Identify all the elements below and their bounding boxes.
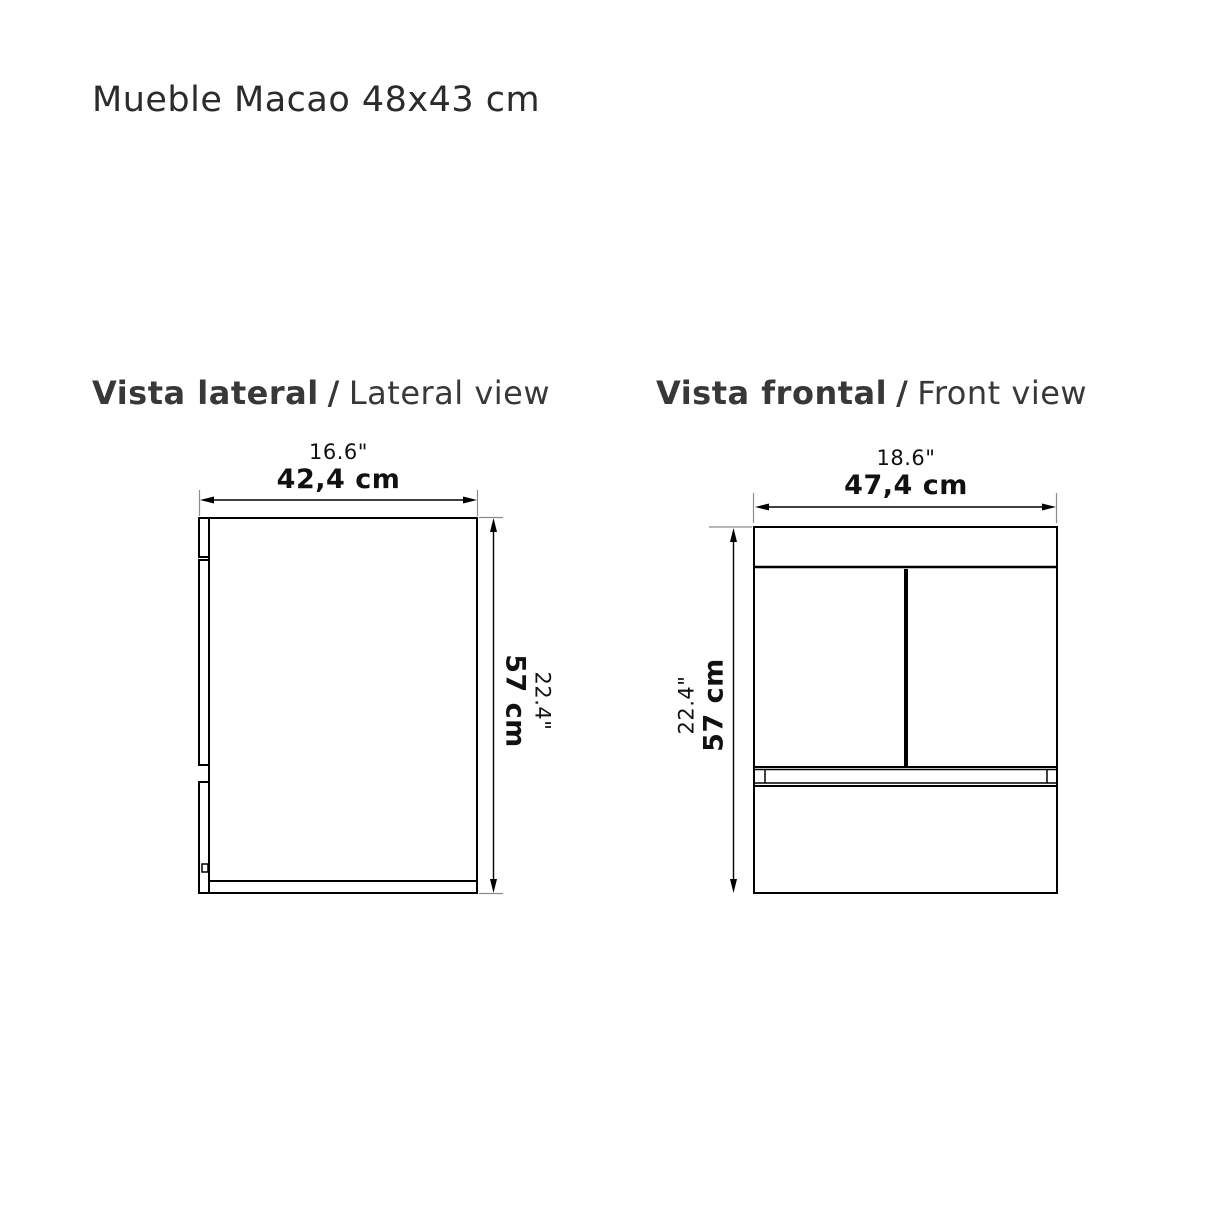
arrowhead-left [200,497,214,504]
front-width-dimension-labels: 18.6" 47,4 cm [755,446,1057,501]
arrowhead-down [490,879,497,893]
lateral-cabinet-body [209,518,477,893]
arrowhead-down [730,879,737,893]
lateral-height-dimension-labels: 22.4" 57 cm [500,654,555,748]
front-bottom-panel [754,786,1057,893]
lateral-width-cm: 42,4 cm [200,464,477,495]
front-height-inches: 22.4" [675,658,699,752]
lateral-door-profile [199,560,209,765]
front-width-cm: 47,4 cm [755,470,1057,501]
front-height-dimension-labels: 22.4" 57 cm [675,658,730,752]
front-width-inches: 18.6" [755,446,1057,470]
front-height-cm: 57 cm [699,658,730,752]
lateral-height-cm: 57 cm [500,654,531,748]
lateral-width-inches: 16.6" [200,440,477,464]
technical-drawing-page: Mueble Macao 48x43 cm Vista lateral/Late… [0,0,1214,1214]
drawing-linework [0,0,1214,1214]
lateral-top-edge-profile [199,518,209,557]
lateral-height-inches: 22.4" [531,654,555,748]
arrowhead-right [1042,504,1056,511]
lateral-view-drawing [199,490,503,894]
arrowhead-right [463,497,477,504]
frontal-view-drawing [709,493,1057,893]
arrowhead-left [755,504,769,511]
lateral-leveler-detail [202,864,208,872]
arrowhead-up [490,518,497,532]
lateral-drawer-profile [199,782,209,893]
lateral-width-dimension-labels: 16.6" 42,4 cm [200,440,477,495]
arrowhead-up [730,528,737,542]
